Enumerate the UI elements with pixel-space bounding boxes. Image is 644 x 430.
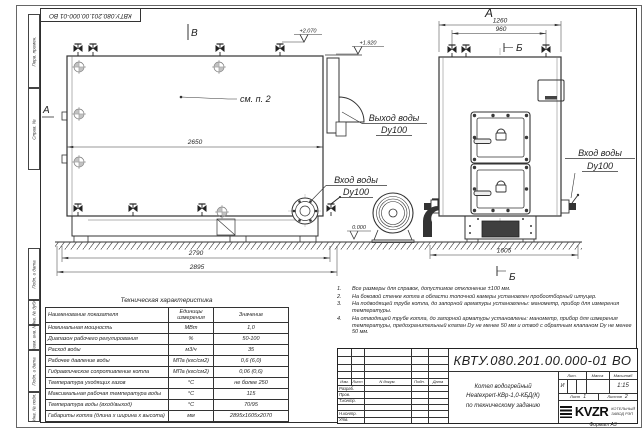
notes-list: 1.Все размеры для справок, допустимое от… — [337, 286, 635, 337]
format-note: Формат А3 — [572, 422, 634, 428]
company-logo: KVZR КОТЕЛЬНЫЙ ЗАВОД РЭП — [558, 400, 637, 423]
note-4: 4.На отводящей трубе котла, до запорной … — [337, 316, 635, 336]
table-row: Диапазон рабочего регулирования%50-100 — [46, 334, 289, 345]
product-name: Котел водогрейный Heatexpert-КВр-1,0-КБД… — [448, 371, 558, 423]
note-3: 3.На подводящей трубе котла, до запорной… — [337, 301, 635, 314]
doc-number: КВТУ.080.201.00.000-01 ВО — [448, 349, 637, 371]
logo-text: KVZR — [575, 404, 608, 419]
mass-label: Масса — [586, 371, 609, 379]
note-1: 1.Все размеры для справок, допустимое от… — [337, 286, 635, 293]
tb-col-podp: Подп. — [411, 378, 428, 385]
table-row: Расход водым3/ч35 — [46, 345, 289, 356]
tb-col-izm: Изм. — [338, 378, 351, 385]
tb-col-list: Лист — [351, 378, 364, 385]
tech-table: Наименование показателя Единицы измерени… — [45, 307, 289, 422]
table-row: Гидравлическое сопротивление котлаМПа (к… — [46, 367, 289, 378]
top-left-doc-stamp: КВТУ.080.201.00.000-01 ВО — [40, 8, 141, 22]
table-row: Габариты котла (длина х ширина х высота)… — [46, 411, 289, 422]
logo-bars-icon — [560, 406, 572, 418]
margin-cell-perv-primen: Перв. примен. — [28, 14, 40, 88]
margin-cell-inv-dubl: Инв. № дубл. — [28, 300, 40, 325]
margin-cell-sprav-no: Справ. № — [28, 88, 40, 170]
tb-col-ndocum: N докум. — [364, 378, 411, 385]
table-row: Номинальная мощностьМВт1,0 — [46, 323, 289, 334]
company-name: КОТЕЛЬНЫЙ ЗАВОД РЭП — [611, 407, 635, 417]
sheets-total: Листов2 — [598, 393, 637, 400]
table-row: Максимальная рабочая температура воды°С1… — [46, 389, 289, 400]
tech-col-unit: Единицы измерения — [169, 308, 214, 323]
margin-cell-inv-podl: Инв. № подл. — [28, 392, 40, 422]
tb-row-utv: Утв. — [338, 417, 365, 423]
title-block: Изм. Лист N докум. Подп. Дата Разраб. Пр… — [337, 348, 638, 424]
sheet-counter: Лист1 — [558, 393, 598, 400]
tech-col-name: Наименование показателя — [46, 308, 169, 323]
drawing-sheet: 2650 2790 2895 1260 960 1605 +2.070 +1.9… — [0, 0, 644, 430]
scale-value: 1:15 — [609, 379, 637, 393]
margin-cell-podp-data-2: Подп. и дата — [28, 350, 40, 392]
tb-row-nkontr: Н.контр. — [338, 410, 365, 416]
tb-col-data: Дата — [428, 378, 448, 385]
tech-table-title: Техническая характеристика — [45, 297, 288, 307]
table-row: Температура уходящих газов°Сне более 250 — [46, 378, 289, 389]
scale-label: Масштаб — [609, 371, 637, 379]
liter-value: И — [558, 379, 567, 393]
note-2: 2.На боковой стенке котла в области топо… — [337, 294, 635, 301]
margin-cell-vzam-inv: Взам. инв. № — [28, 325, 40, 350]
tb-row-prov: Пров. — [338, 391, 365, 397]
table-row: Температура воды (вход/выход)°С70/95 — [46, 400, 289, 411]
tech-characteristics: Техническая характеристика Наименование … — [45, 297, 288, 422]
tech-col-value: Значение — [214, 308, 289, 323]
table-row: Рабочее давление водыМПа (кгс/см2)0,6 (6… — [46, 356, 289, 367]
liter-label: Лит. — [558, 371, 586, 379]
margin-cell-podp-data-1: Подп. и дата — [28, 248, 40, 300]
